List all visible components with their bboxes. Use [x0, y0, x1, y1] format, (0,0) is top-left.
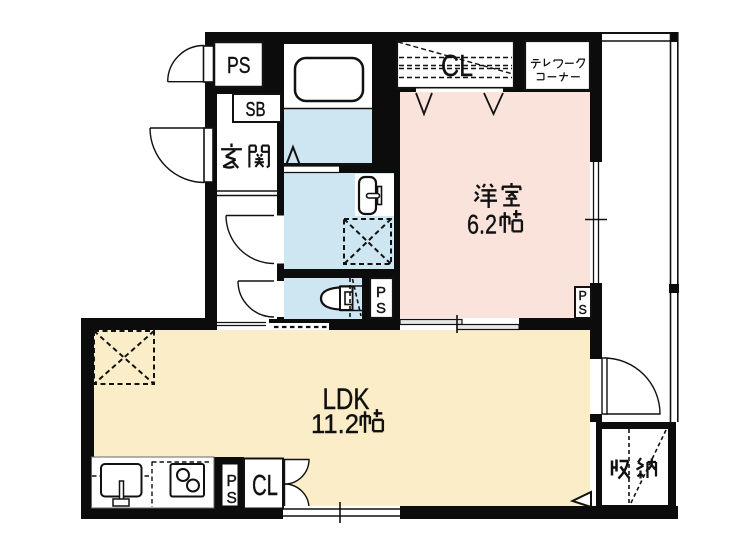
svg-text:P: P	[579, 289, 587, 303]
svg-text:P: P	[376, 284, 386, 301]
svg-text:11.2: 11.2	[311, 409, 359, 439]
svg-text:S: S	[579, 303, 587, 317]
svg-text:CL: CL	[441, 48, 473, 83]
svg-text:S: S	[376, 300, 386, 317]
svg-text:6.2: 6.2	[467, 210, 497, 240]
svg-text:S: S	[227, 490, 237, 507]
svg-text:P: P	[227, 473, 237, 490]
svg-text:PS: PS	[227, 52, 251, 78]
svg-text:SB: SB	[246, 99, 266, 121]
svg-text:CL: CL	[252, 470, 278, 502]
